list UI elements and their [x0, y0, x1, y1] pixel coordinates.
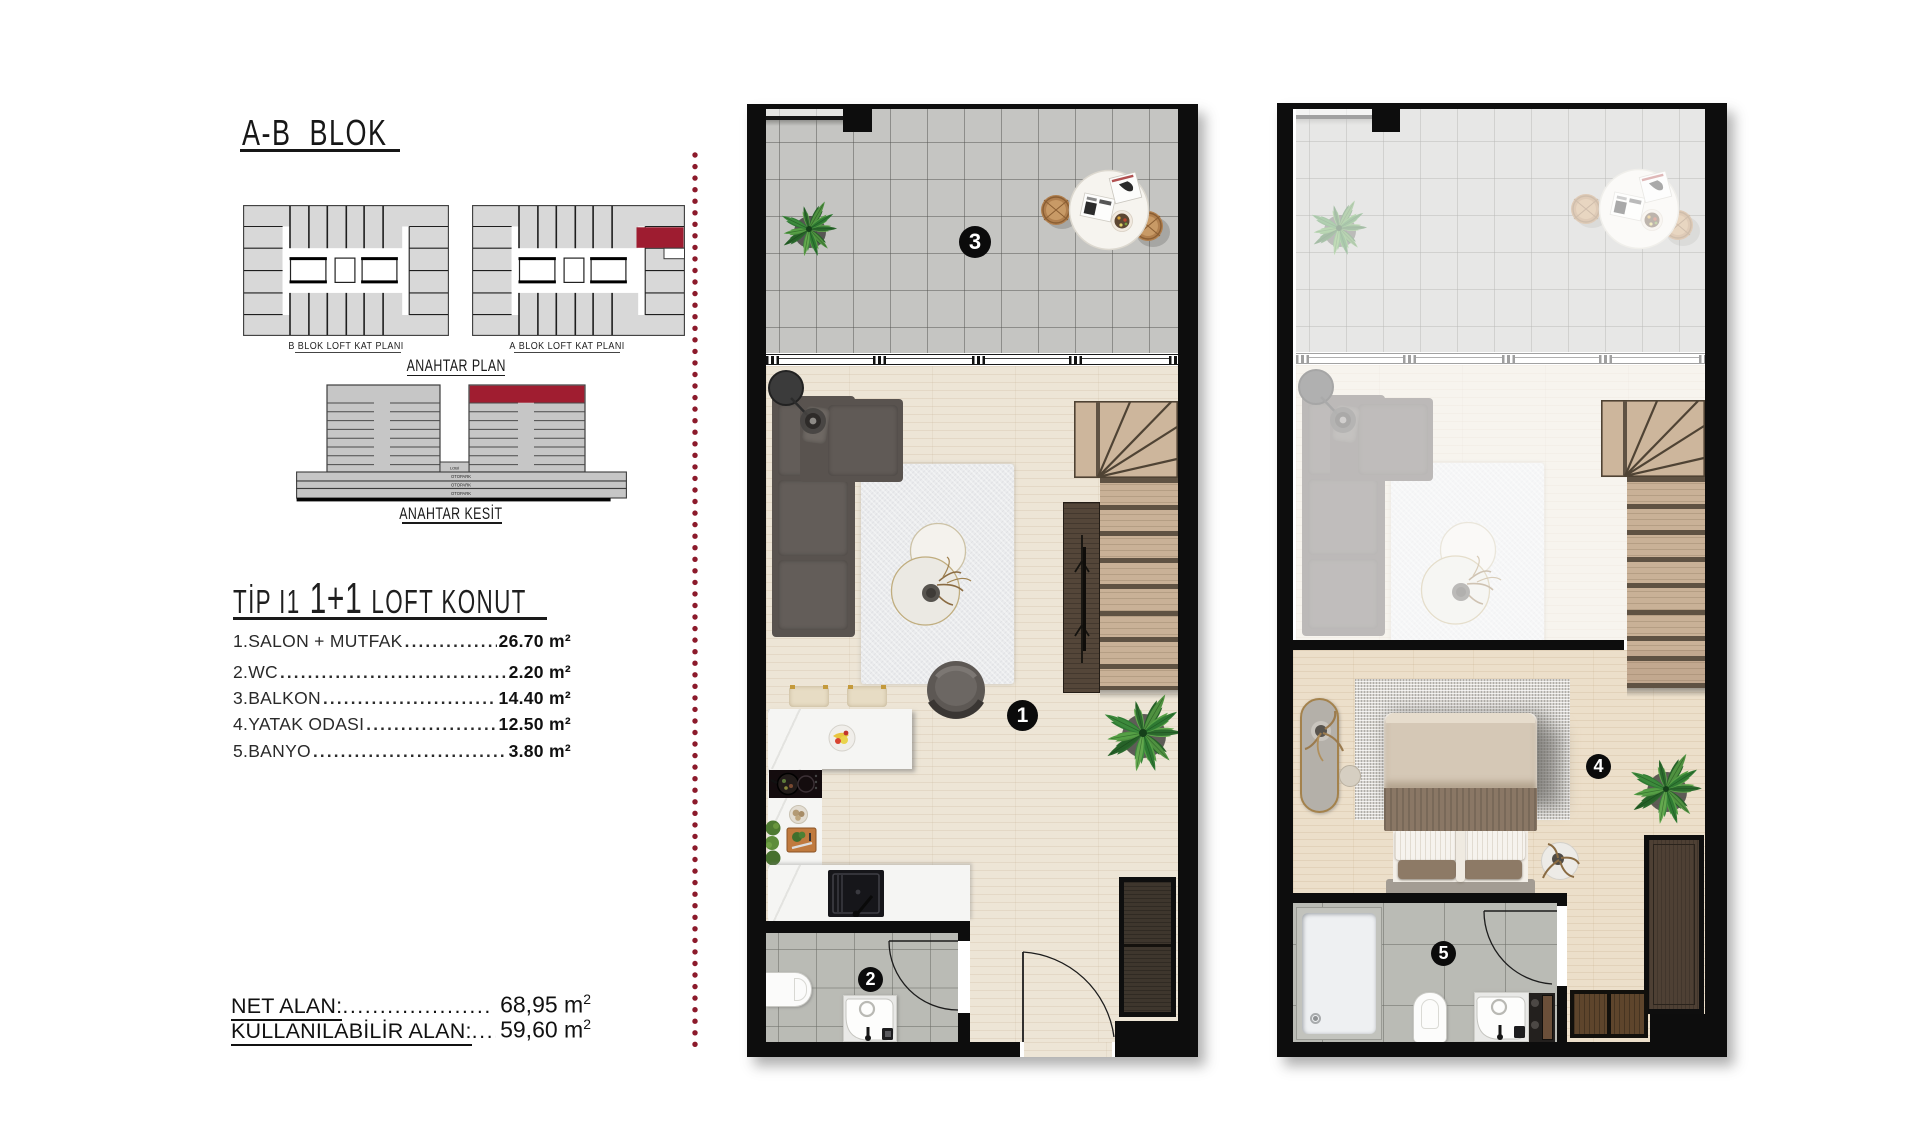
svg-text:OTOPARK: OTOPARK	[451, 491, 471, 496]
svg-text:OTOPARK: OTOPARK	[451, 482, 471, 487]
svg-text:OTOPARK: OTOPARK	[451, 474, 471, 479]
svg-text:LOBİ: LOBİ	[450, 466, 459, 471]
